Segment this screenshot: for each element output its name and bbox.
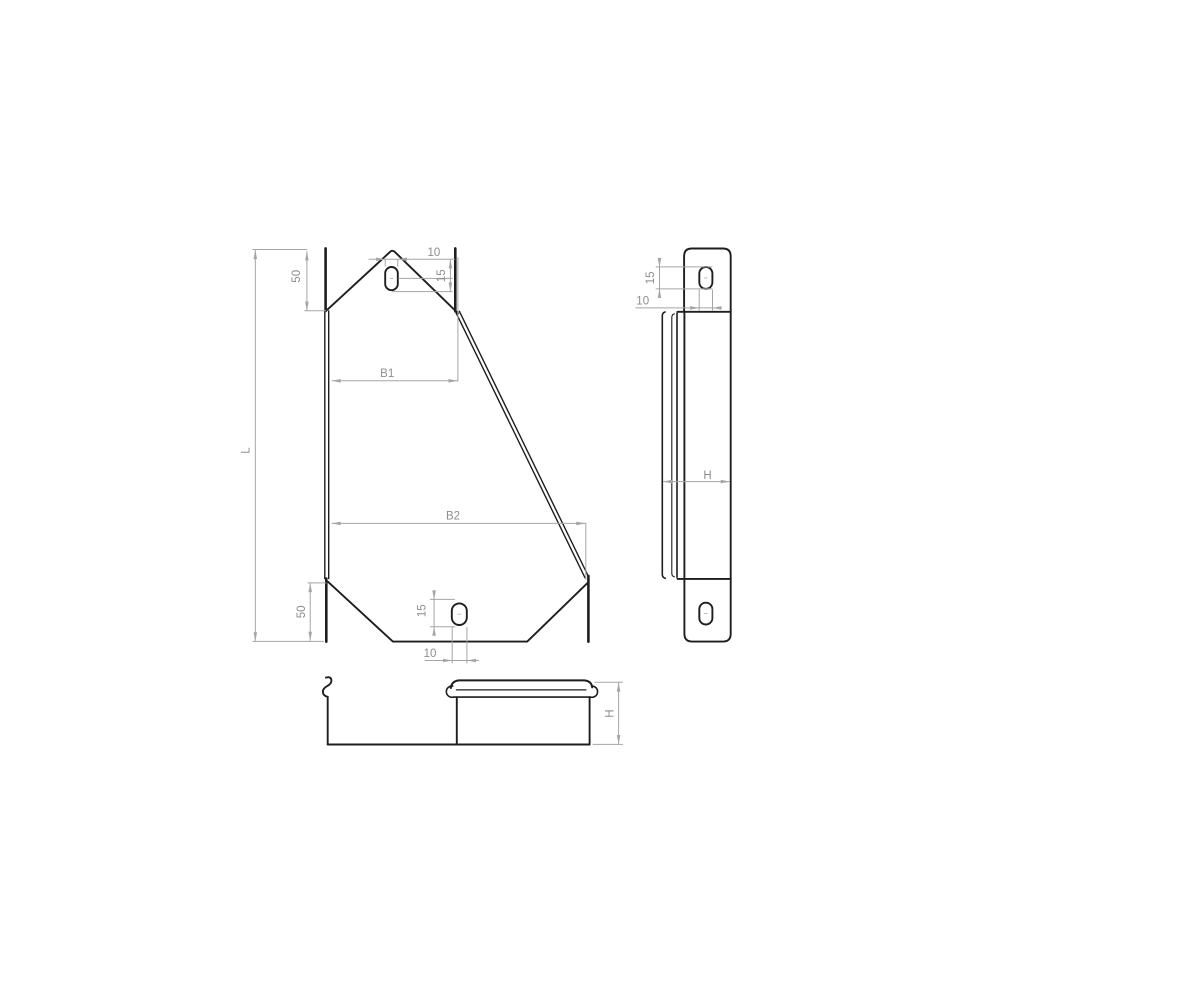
bottom-bead-left-roll [446, 686, 453, 697]
label-bottom-slot-15: 15 [417, 604, 429, 617]
dim-B2 [332, 522, 586, 580]
side-hem-outer [662, 312, 665, 578]
bottom-left-rolled-edge [323, 677, 332, 744]
front-view [325, 248, 589, 641]
front-view-dimensions [252, 250, 585, 664]
dimension-labels: L 50 50 B1 B2 10 15 15 10 15 10 H H [241, 247, 712, 718]
bottom-bead-top [451, 680, 592, 688]
label-L: L [241, 447, 253, 454]
label-50-bottom: 50 [296, 606, 308, 619]
dim-50-bottom [308, 583, 327, 641]
dim-top-slot-width [369, 258, 455, 267]
drawing-canvas: L 50 50 B1 B2 10 15 15 10 15 10 H H [0, 0, 1200, 1000]
label-B1: B1 [380, 368, 394, 380]
label-side-slot-10: 10 [636, 295, 649, 307]
label-top-slot-10: 10 [428, 247, 441, 259]
dim-50-top [304, 251, 326, 310]
technical-drawing: L 50 50 B1 B2 10 15 15 10 15 10 H H [0, 0, 1200, 1000]
front-bottom-fold-outline [328, 582, 588, 642]
label-bottom-slot-10: 10 [424, 648, 437, 660]
label-top-slot-15: 15 [436, 269, 448, 282]
bottom-view [323, 677, 598, 744]
dim-side-depth [663, 480, 730, 484]
side-view-dimensions [636, 258, 730, 484]
label-bottom-H: H [605, 709, 617, 717]
label-side-slot-15: 15 [645, 272, 657, 285]
front-right-rail-inner [459, 311, 588, 576]
label-B2: B2 [446, 511, 460, 523]
side-hem-middle [672, 314, 675, 577]
label-side-H: H [703, 470, 711, 482]
label-50-top: 50 [291, 270, 303, 283]
front-right-rail-outer [456, 313, 585, 578]
